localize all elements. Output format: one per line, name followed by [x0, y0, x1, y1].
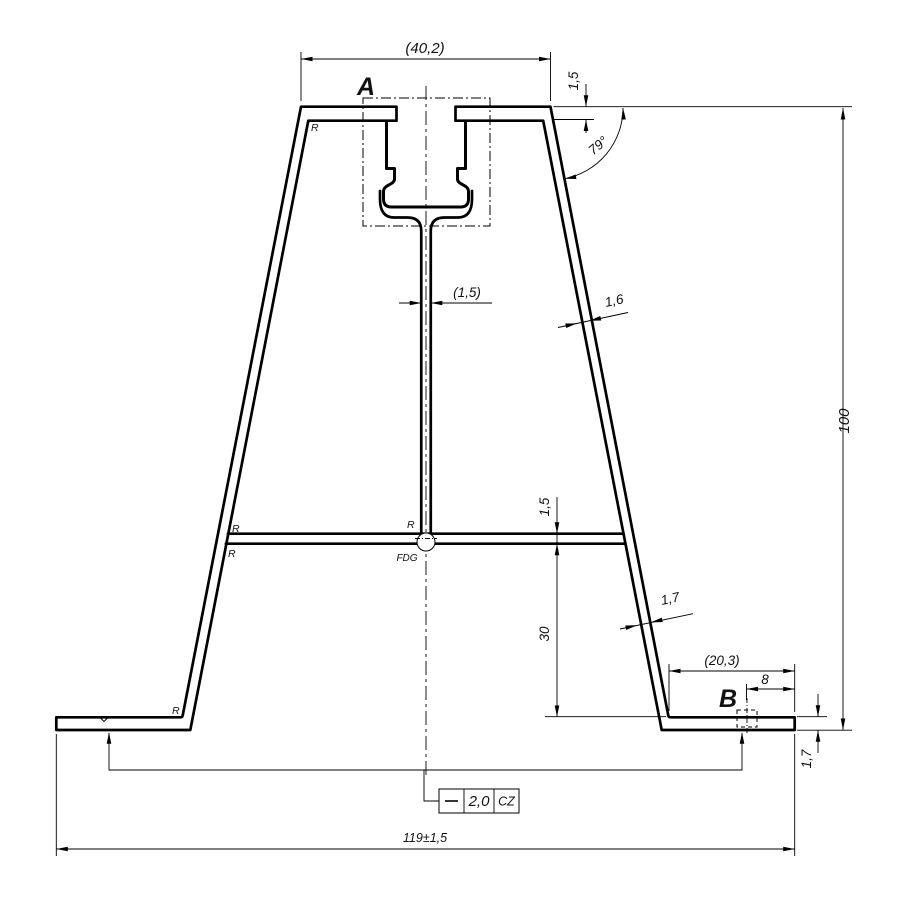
- arrow: [625, 623, 637, 630]
- radius-mark-flange: R: [172, 705, 180, 717]
- arrow: [816, 730, 821, 742]
- arrow: [621, 108, 626, 120]
- arrow: [841, 108, 846, 120]
- dim-flange-thickness: 1,7: [799, 749, 814, 768]
- arrow: [539, 57, 551, 62]
- dim-lower-wall-thickness: 1,7: [659, 589, 681, 608]
- arrow: [565, 321, 577, 328]
- tolerance-frame: 2,0 CZ: [439, 789, 519, 813]
- dim-wall-angle: 79°: [585, 133, 611, 158]
- arrow: [783, 669, 795, 674]
- arrow: [841, 719, 846, 731]
- dim-overall-width: 119±1,5: [403, 831, 447, 845]
- arrow: [431, 301, 443, 306]
- profile-drawing: 2,0 CZ (40,2) A 1,5 79° 100 (1,5) 1,6 1,…: [0, 0, 900, 900]
- arrow: [555, 706, 560, 718]
- arrow: [651, 618, 663, 625]
- dim-detail-b-offset: 8: [761, 672, 769, 687]
- detail-a-label: A: [356, 73, 375, 101]
- dim-rib-to-base-height: 30: [537, 626, 552, 642]
- dimension-lines: [56, 52, 852, 856]
- arrow: [740, 732, 745, 744]
- arrow: [669, 669, 681, 674]
- channel-flare-web-left-face: [380, 191, 421, 534]
- dim-cap-thickness: 1,5: [566, 71, 581, 90]
- arrow: [584, 120, 589, 132]
- arrow: [584, 95, 589, 107]
- arrow: [783, 687, 795, 692]
- arrow: [555, 544, 560, 556]
- radius-mark-rib-upper: R: [232, 523, 240, 535]
- profile-outline: [56, 107, 794, 730]
- radius-mark-rib-lower: R: [228, 548, 236, 560]
- arrow: [564, 174, 576, 181]
- arrowheads: [56, 57, 845, 852]
- arrow: [301, 57, 313, 62]
- detail-b-label: B: [719, 685, 737, 713]
- dim-top-width: (40,2): [405, 40, 444, 57]
- profile-left-outline: [56, 107, 396, 730]
- drawing-canvas: 2,0 CZ (40,2) A 1,5 79° 100 (1,5) 1,6 1,…: [0, 0, 900, 900]
- arrow: [783, 847, 795, 852]
- dim-upper-wall-thickness: 1,6: [603, 291, 625, 310]
- radius-mark-web: R: [407, 519, 415, 531]
- dim-flange-segment-width: (20,3): [704, 653, 739, 668]
- arrow: [555, 522, 560, 534]
- dim-overall-height: 100: [836, 408, 853, 434]
- channel-flare-web-right-face: [431, 191, 472, 534]
- arrow: [107, 732, 112, 744]
- arrow: [747, 687, 759, 692]
- dim-web-thickness: (1,5): [453, 285, 481, 300]
- tolerance-value: 2,0: [468, 793, 491, 810]
- fdg-junction-circle: [417, 533, 435, 551]
- profile-right-outline: [456, 107, 795, 730]
- tolerance-frame-leaders: [109, 733, 742, 801]
- fdg-datum-label: FDG: [396, 553, 417, 564]
- radius-mark-top-left: R: [311, 122, 319, 134]
- arrow: [816, 705, 821, 717]
- arrow: [410, 301, 422, 306]
- arrow: [56, 847, 68, 852]
- tolerance-zone: CZ: [498, 795, 515, 809]
- radius-marks: R R R R R: [172, 122, 415, 717]
- dim-detail-b-offset-lines: [747, 684, 795, 700]
- dim-rib-thickness: 1,5: [537, 497, 552, 516]
